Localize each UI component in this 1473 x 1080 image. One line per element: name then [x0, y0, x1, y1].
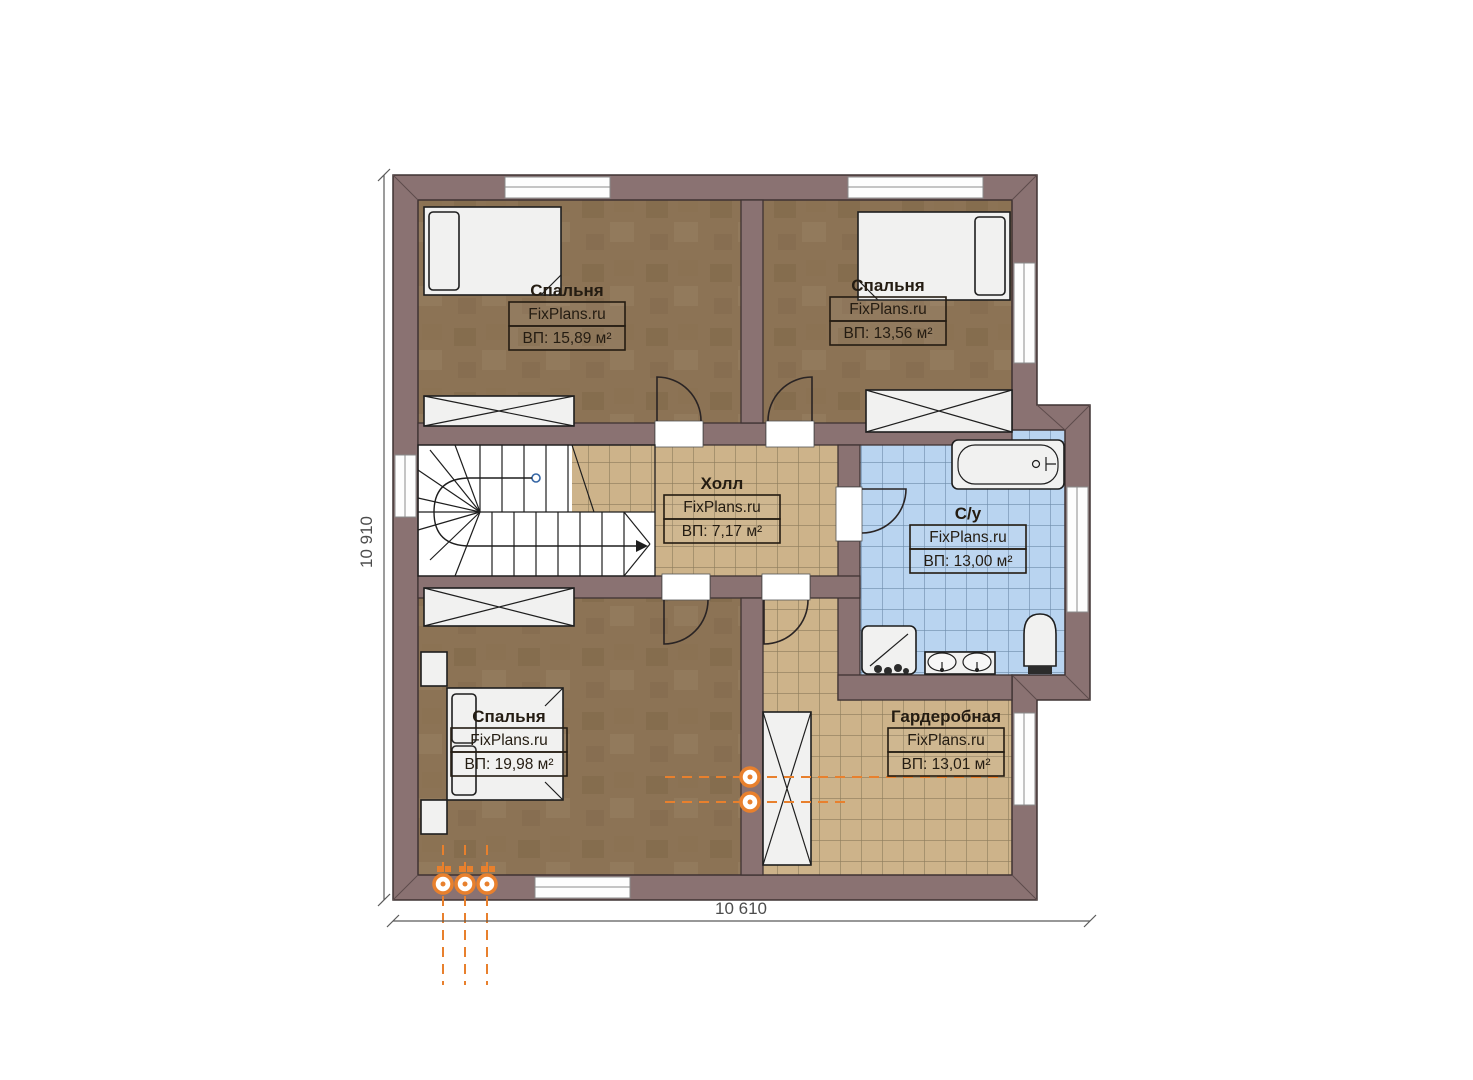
room-brand: FixPlans.ru [849, 301, 927, 318]
window [505, 177, 610, 198]
room-name: С/у [955, 504, 982, 523]
room-name: Спальня [472, 707, 545, 726]
room-brand: FixPlans.ru [470, 732, 548, 749]
dimension-height-label: 10 910 [357, 516, 376, 568]
room-area: ВП: 13,00 м² [923, 553, 1012, 570]
room-name: Гардеробная [891, 707, 1001, 726]
window [1014, 713, 1035, 805]
window [848, 177, 983, 198]
dimension-left: 10 910 [357, 169, 390, 906]
room-brand: FixPlans.ru [528, 306, 606, 323]
wardrobe-top-right [866, 390, 1012, 432]
label-wardrobe: Гардеробная FixPlans.ru ВП: 13,01 м² [888, 707, 1004, 776]
window [395, 455, 416, 517]
bathtub [952, 440, 1064, 489]
room-brand: FixPlans.ru [683, 499, 761, 516]
room-area: ВП: 13,56 м² [843, 325, 932, 342]
window [1067, 487, 1088, 612]
floor-wardrobe [838, 700, 1012, 875]
room-name: Холл [701, 474, 744, 493]
room-area: ВП: 13,01 м² [901, 756, 990, 773]
room-area: ВП: 19,98 м² [464, 756, 553, 773]
room-area: ВП: 7,17 м² [682, 523, 762, 540]
floor-stair-landing [572, 445, 655, 512]
double-sink [925, 652, 995, 674]
wardrobe-bottom-left [424, 588, 574, 626]
dimension-bottom: 10 610 [387, 899, 1096, 927]
shower [862, 626, 916, 675]
window [1014, 263, 1035, 363]
wardrobe-top-left [424, 396, 574, 426]
room-name: Спальня [530, 281, 603, 300]
room-brand: FixPlans.ru [929, 529, 1007, 546]
room-brand: FixPlans.ru [907, 732, 985, 749]
window [535, 877, 630, 898]
floor-plan-page: Спальня FixPlans.ru ВП: 15,89 м² Спальня… [0, 0, 1473, 1080]
floor-plan-drawing: Спальня FixPlans.ru ВП: 15,89 м² Спальня… [0, 0, 1473, 1080]
dimension-width-label: 10 610 [715, 899, 767, 918]
wardrobe-cabinet [763, 712, 811, 865]
room-name: Спальня [851, 276, 924, 295]
room-area: ВП: 15,89 м² [522, 330, 611, 347]
toilet [1024, 614, 1056, 674]
